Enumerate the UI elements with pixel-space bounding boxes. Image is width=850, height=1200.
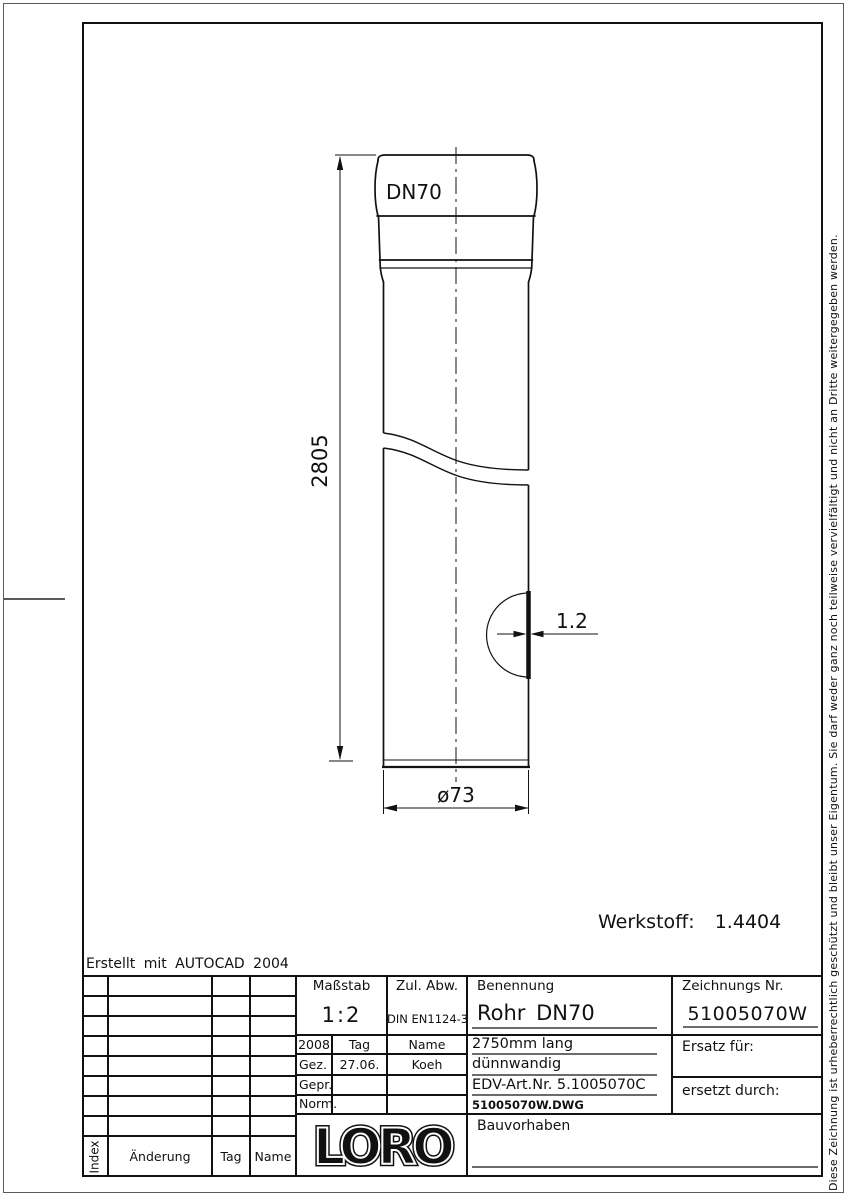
name-label: Name [255,1149,292,1164]
zul-abw-value: DIN EN1124-3 [387,1013,467,1026]
loro-logo-inner: LORO [313,1119,452,1175]
benennung-value: Rohr DN70 [477,1001,595,1025]
index-label: Index [88,1140,102,1173]
norm-label: Norm. [299,1097,337,1111]
line [466,975,468,1177]
werkstoff-note: Werkstoff: 1.4404 [598,912,781,934]
dim-wall-text: 1.2 [556,609,588,633]
zeichnungs-nr-value: 51005070W [672,1004,823,1026]
line [296,1113,823,1115]
zeichnungs-nr-label: Zeichnungs Nr. [682,979,784,995]
revision-header-tag: Tag [212,1136,250,1177]
line [82,1055,296,1057]
underline [683,1026,818,1028]
zul-abw-label: Zul. Abw. [387,979,467,995]
approval-tag-header: Tag [332,1038,387,1052]
line [82,1115,296,1117]
detail-line-1: 2750mm lang [472,1036,573,1053]
pipe-drawing: 2805 ø73 1.2 DN70 [300,140,620,830]
line [82,975,823,977]
line [82,1095,296,1097]
detail-line-4: 51005070W.DWG [472,1099,584,1112]
detail-line-3: EDV-Art.Nr. 5.1005070C [472,1077,645,1094]
approval-name-header: Name [387,1038,467,1052]
autocad-note: Erstellt mit AUTOCAD 2004 [86,956,289,972]
underline [472,1053,657,1055]
gez-tag: 27.06. [332,1058,387,1072]
dim-2805-text: 2805 [308,434,332,487]
underline [472,1094,657,1096]
aenderung-label: Änderung [129,1149,190,1164]
masstab-label: Maßstab [296,979,387,995]
line [296,1074,467,1076]
line [82,1075,296,1077]
drawing-sheet: Diese Zeichnung ist urheberrechtlich ges… [0,0,850,1200]
line [82,1035,296,1037]
revision-header-aenderung: Änderung [108,1136,212,1177]
bauvorhaben-label: Bauvorhaben [477,1118,570,1134]
gepr-label: Gepr. [299,1078,332,1092]
approval-year: 2008 [296,1038,332,1052]
revision-header-index: Index [82,1136,108,1177]
dim-dia73-text: ø73 [437,783,475,807]
line [82,995,296,997]
dim-2805: 2805 [308,155,376,761]
dim-dia73: ø73 [384,770,529,814]
underline [472,1074,657,1076]
copyright-note: Diese Zeichnung ist urheberrechtlich ges… [827,326,840,1191]
gez-name: Koeh [387,1058,467,1072]
masstab-value: 1:2 [296,1003,387,1027]
centering-mark [3,598,65,600]
ersetzt-durch-label: ersetzt durch: [682,1083,780,1099]
line [671,975,673,1115]
detail-line-2: dünnwandig [472,1056,561,1073]
benennung-label: Benennung [477,979,554,995]
gez-label: Gez. [299,1058,327,1072]
ersatz-fuer-label: Ersatz für: [682,1039,754,1055]
dim-wall-1-2: 1.2 [497,609,598,637]
line [296,1053,467,1055]
line [672,1076,823,1078]
underline [472,1166,818,1168]
underline [472,1027,657,1029]
line [82,1015,296,1017]
revision-header-name: Name [250,1136,296,1177]
loro-logo: LORO LORO [300,1119,464,1175]
tag-label: Tag [220,1149,241,1164]
dn70-label: DN70 [386,180,442,204]
